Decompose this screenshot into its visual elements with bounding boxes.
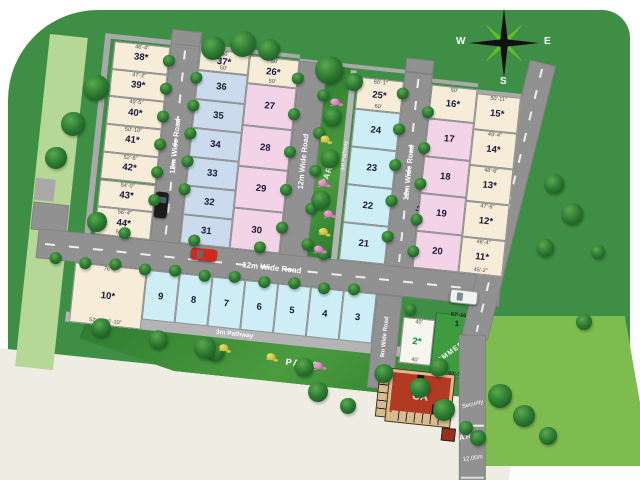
plot-17: 17 (424, 118, 474, 160)
tree-icon (544, 174, 564, 194)
tree-icon (539, 427, 557, 445)
west-road-stub (30, 202, 69, 234)
plot-number: 11* (475, 251, 490, 263)
dimension-line (461, 477, 484, 479)
plot-number: 27 (264, 100, 276, 112)
plot-14: 49'-4"14* (470, 129, 518, 169)
compass-rose: N S W E (456, 0, 552, 92)
plot-number: 25* (372, 89, 387, 101)
plot-5: 5 (273, 284, 311, 337)
plot-number: 39* (130, 79, 145, 91)
plot-12: 47'-6"12* (462, 201, 510, 241)
tree-icon (561, 203, 583, 225)
tree-icon (591, 245, 605, 259)
plot-number: 17 (443, 133, 455, 145)
site-plan-image: 40' 2* 40' 57'-10" 1 COMMERCIAL 60'-5" C… (0, 0, 640, 480)
plot-9: 9 (142, 270, 180, 323)
plot-19: 19 (417, 193, 467, 235)
plot-2: 40' 2* 40' (399, 317, 436, 366)
plot-21: 21 (339, 222, 389, 265)
plot-number: 15* (489, 107, 504, 119)
tree-icon (410, 378, 430, 398)
plot-number: 42* (122, 162, 137, 174)
plot-number: 22 (362, 199, 374, 211)
plot-number: 3 (354, 311, 360, 322)
plot-number: 29 (255, 183, 267, 195)
plot-15: 50'-11"15* (473, 93, 521, 133)
plot-number: 31 (200, 225, 212, 237)
road-width-label: 12.00m (462, 454, 483, 463)
plot-11: 46'-4"11*45'-2" (458, 237, 506, 277)
tree-icon (340, 398, 356, 414)
tree-icon (315, 56, 343, 84)
plot-22: 22 (343, 184, 393, 227)
tree-icon (230, 31, 256, 57)
tree-icon (308, 382, 328, 402)
compass-needle-ew (469, 39, 539, 47)
white-car-icon (449, 289, 478, 306)
plot-number: 28 (259, 142, 271, 154)
plot-number: 33 (206, 168, 218, 180)
plot-number: 4 (322, 308, 328, 319)
plot-2-dim: 40' (404, 318, 434, 327)
plot-number: 21 (358, 237, 370, 249)
west-block (34, 178, 56, 202)
compass-north: N (498, 0, 507, 11)
plot-number: 14* (486, 143, 501, 155)
plot-number: 26* (266, 66, 281, 78)
plot-10: 76'-4"10*52'-8" 26'-10" (69, 262, 147, 329)
plot-number: 5 (289, 304, 295, 315)
plot-number: 41* (125, 134, 140, 146)
plot-number: 9 (157, 291, 163, 302)
tree-icon (194, 337, 216, 359)
entrance-road: Security ARCH 12.00m (459, 335, 486, 480)
plot-number: 32 (203, 196, 215, 208)
plot-number: 10* (100, 290, 115, 302)
plot-20: 20 (413, 230, 463, 272)
tree-icon (536, 239, 554, 257)
red-car-icon (190, 247, 217, 262)
compass-east: E (544, 36, 551, 47)
plot-number: 30 (251, 224, 263, 236)
security-label: Security (462, 399, 484, 410)
plot-number: 35 (213, 110, 225, 122)
plot-7: 7 (207, 277, 245, 330)
plot-number: 12* (478, 215, 493, 227)
compass-west: W (456, 36, 465, 47)
tree-icon (258, 39, 280, 61)
plot-number: 7 (223, 297, 229, 308)
plotted-layout: 40' 2* 40' 57'-10" 1 COMMERCIAL 60'-5" C… (85, 36, 86, 37)
plot-number: 13* (482, 179, 497, 191)
plot-4: 4 (306, 287, 344, 340)
plot-13: 48'-6"13* (466, 165, 514, 205)
tree-icon (345, 73, 363, 91)
tree-icon (45, 147, 67, 169)
plot-number: 16* (445, 98, 460, 110)
plot-number: 20 (432, 245, 444, 257)
plot-2-number: 2* (412, 335, 422, 347)
plot-number: 24 (370, 124, 382, 136)
plot-number: 36 (216, 81, 228, 93)
plot-number: 6 (256, 301, 262, 312)
plot-27: 27 (243, 83, 297, 129)
tree-icon (61, 112, 85, 136)
plot-number: 19 (436, 208, 448, 220)
security-cabin (441, 427, 456, 441)
plot-6: 6 (240, 280, 278, 333)
tree-icon (576, 314, 592, 330)
plot-number: 43* (119, 189, 134, 201)
tree-icon (488, 384, 512, 408)
plot-number: 8 (190, 294, 196, 305)
tree-icon (459, 421, 473, 435)
plot-number: 18 (439, 171, 451, 183)
plot-number: 34 (210, 139, 222, 151)
plot-number: 40* (128, 107, 143, 119)
plot-3: 3 (339, 290, 377, 343)
compass-south: S (500, 76, 507, 87)
plot-18: 18 (420, 156, 470, 198)
tree-icon (470, 430, 486, 446)
tree-icon (83, 75, 109, 101)
tree-icon (87, 212, 107, 232)
plot-number: 38* (133, 52, 148, 64)
plot-number: 23 (366, 162, 378, 174)
tree-icon (433, 399, 455, 421)
tree-icon (201, 36, 225, 60)
plot-1-number: 1 (454, 319, 459, 328)
tree-icon (513, 405, 535, 427)
